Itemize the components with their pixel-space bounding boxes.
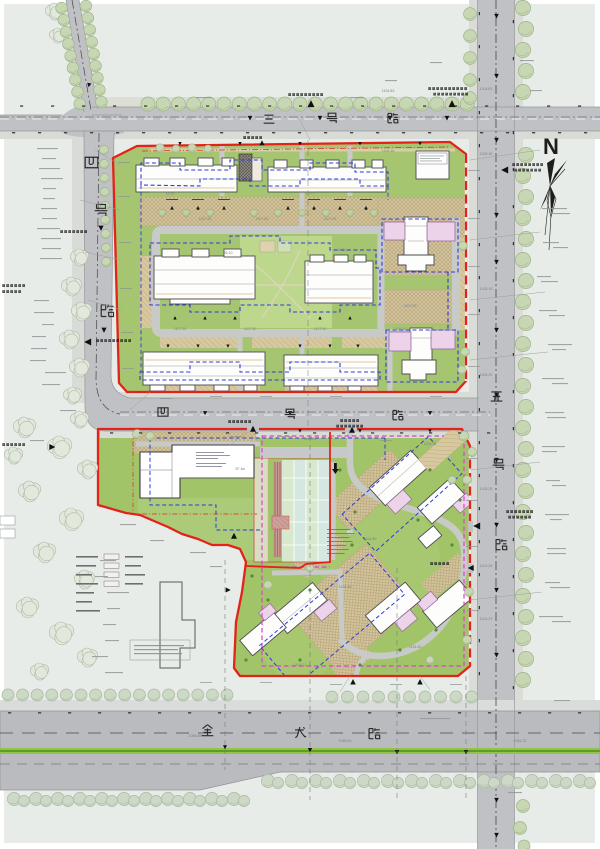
svg-text:1107.50: 1107.50 bbox=[314, 327, 327, 331]
svg-text:1107.50: 1107.50 bbox=[324, 217, 337, 221]
svg-text:1104.40: 1104.40 bbox=[409, 645, 422, 649]
svg-text:1081.32: 1081.32 bbox=[514, 739, 527, 743]
svg-text:1107.50: 1107.50 bbox=[199, 217, 212, 221]
svg-text:1104.83: 1104.83 bbox=[480, 87, 493, 91]
svg-text:24.10: 24.10 bbox=[338, 248, 347, 252]
svg-text:1105.22: 1105.22 bbox=[480, 373, 493, 377]
svg-text:1104.20: 1104.20 bbox=[304, 437, 317, 441]
svg-text:1107.50: 1107.50 bbox=[244, 327, 257, 331]
svg-text:1104.23: 1104.23 bbox=[480, 617, 493, 621]
svg-text:15.70: 15.70 bbox=[306, 191, 315, 195]
svg-text:1086.85: 1086.85 bbox=[189, 734, 202, 738]
svg-text:1104.80: 1104.80 bbox=[339, 585, 352, 589]
svg-text:1107.50: 1107.50 bbox=[404, 304, 417, 308]
svg-text:N: N bbox=[543, 134, 559, 159]
svg-text:1105.16: 1105.16 bbox=[382, 149, 395, 153]
svg-text:1104.83: 1104.83 bbox=[382, 89, 395, 93]
svg-text:1107.50: 1107.50 bbox=[256, 217, 269, 221]
svg-text:1104.28: 1104.28 bbox=[480, 564, 493, 568]
svg-text:15.70: 15.70 bbox=[166, 192, 175, 196]
svg-text:1105.25: 1105.25 bbox=[480, 487, 493, 491]
svg-text:1105.18: 1105.18 bbox=[480, 287, 493, 291]
svg-text:1104.80: 1104.80 bbox=[364, 537, 377, 541]
svg-text:1104.30: 1104.30 bbox=[424, 442, 437, 446]
svg-text:1107.50: 1107.50 bbox=[174, 327, 187, 331]
svg-text:2F-6a: 2F-6a bbox=[235, 467, 244, 471]
svg-text:1108.30: 1108.30 bbox=[394, 327, 407, 331]
svg-text:26.10: 26.10 bbox=[224, 251, 233, 255]
svg-text:1104.22: 1104.22 bbox=[294, 663, 307, 667]
svg-text:1105.16: 1105.16 bbox=[480, 152, 493, 156]
svg-text:1089.64: 1089.64 bbox=[339, 739, 352, 743]
